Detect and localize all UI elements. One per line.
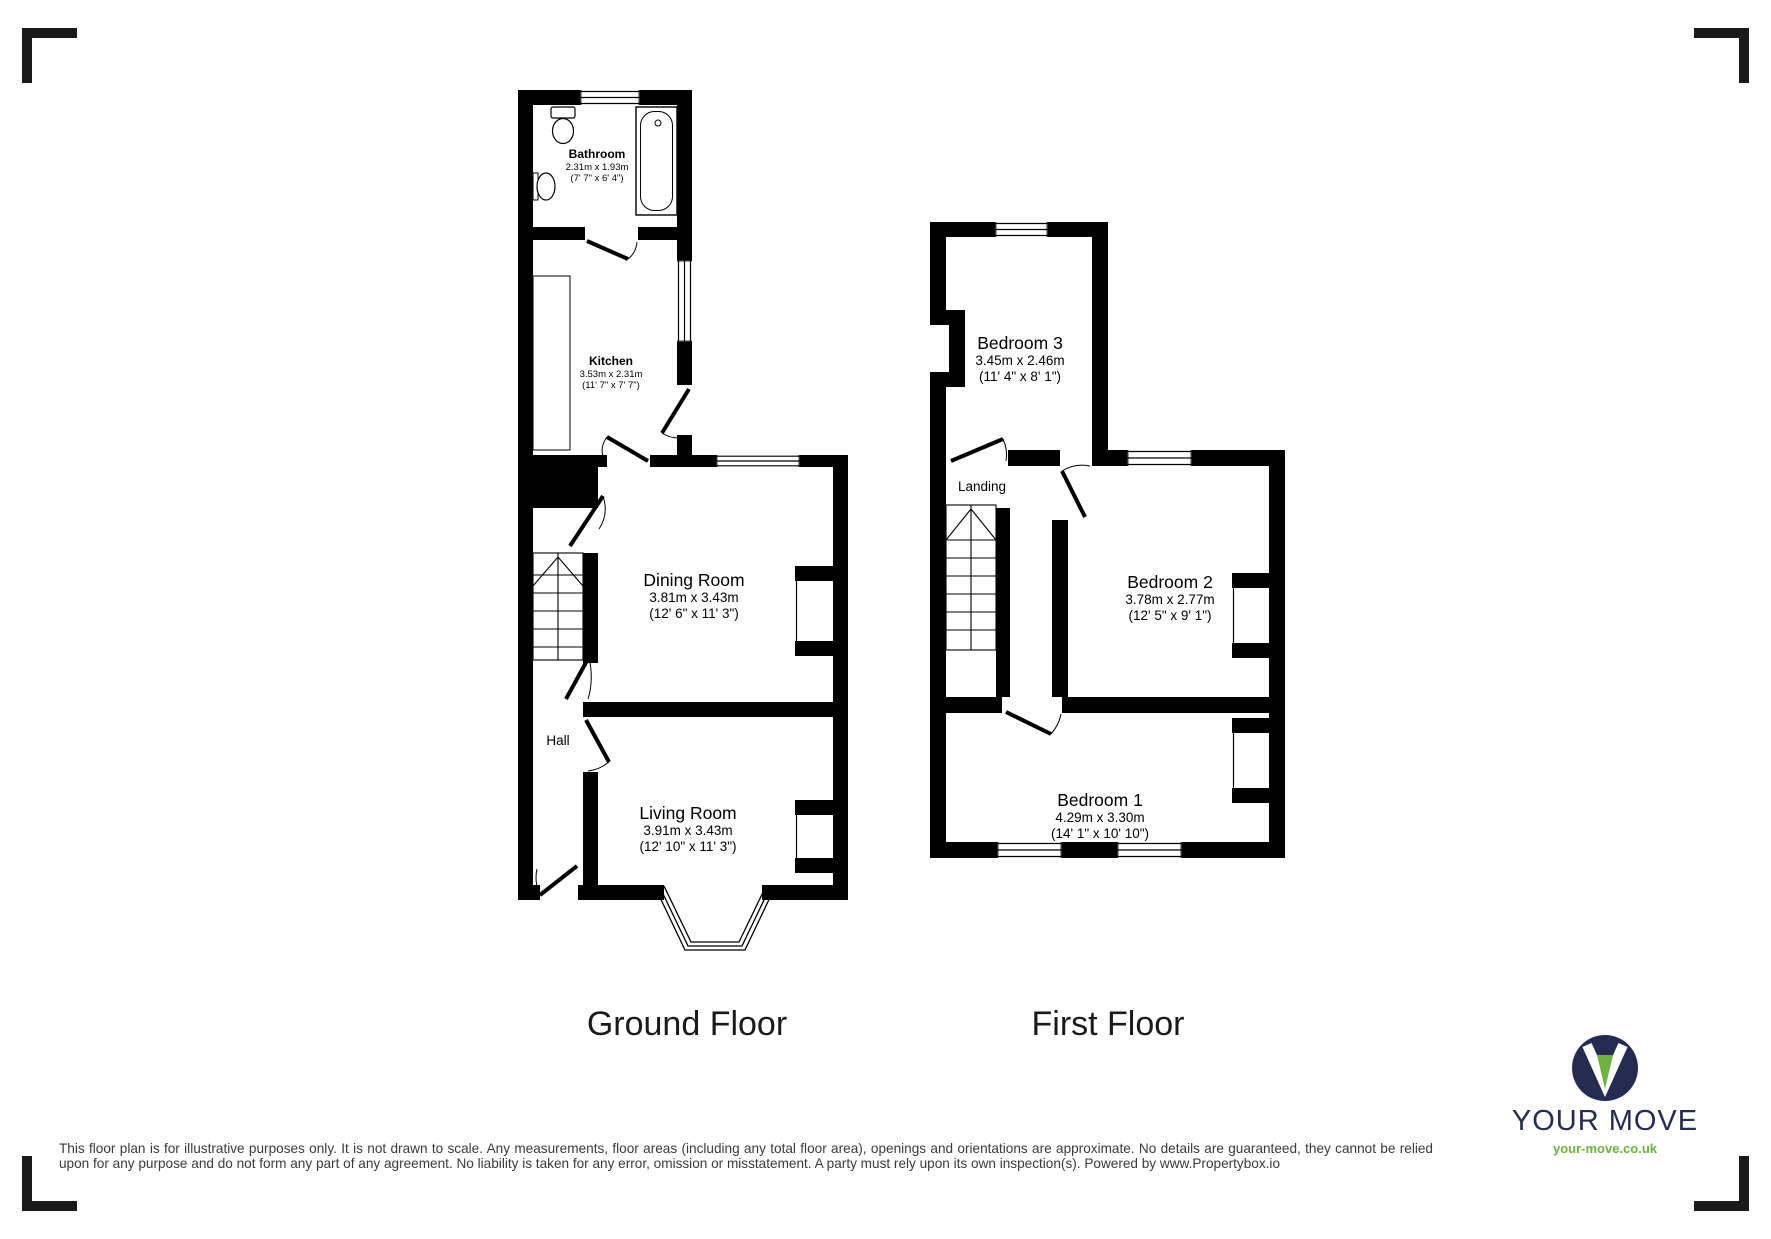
bedroom3-window	[995, 222, 1048, 237]
corner-marks	[22, 28, 1749, 1211]
room-size-metric: 2.31m x 1.93m	[566, 162, 629, 173]
room-name: Living Room	[639, 803, 736, 823]
first-floor-stairs	[946, 505, 996, 650]
bedroom2-window	[1127, 450, 1192, 466]
room-label-bedroom-3: Bedroom 3 3.45m x 2.46m (11' 4" x 8' 1")	[975, 333, 1064, 385]
room-name: Landing	[958, 479, 1006, 495]
ground-floor-stairs	[533, 553, 583, 660]
room-size-imperial: (12' 6" x 11' 3")	[643, 606, 744, 622]
room-label-bedroom-2: Bedroom 2 3.78m x 2.77m (12' 5" x 9' 1")	[1125, 572, 1214, 624]
room-size-imperial: (12' 5" x 9' 1")	[1125, 608, 1214, 624]
room-size-imperial: (11' 7" x 7' 7")	[580, 380, 643, 391]
first-floor-plan	[930, 222, 1285, 858]
corner-mark-bottom-right	[1694, 1156, 1749, 1211]
room-label-living-room: Living Room 3.91m x 3.43m (12' 10" x 11'…	[639, 803, 736, 855]
sink-icon	[533, 173, 555, 200]
room-size-imperial: (11' 4" x 8' 1")	[975, 369, 1064, 385]
toilet-icon	[551, 107, 575, 144]
room-label-kitchen: Kitchen 3.53m x 2.31m (11' 7" x 7' 7")	[580, 355, 643, 391]
bedroom1-window-right	[1117, 842, 1182, 858]
kitchen-counter	[533, 276, 570, 450]
room-name: Dining Room	[643, 570, 744, 590]
disclaimer-text: This floor plan is for illustrative purp…	[59, 1141, 1433, 1172]
room-size-imperial: (7' 7" x 6' 4")	[566, 173, 629, 184]
logo-brand-text: YOUR MOVE	[1509, 1106, 1701, 1138]
bay-window	[650, 885, 776, 950]
room-size-metric: 3.78m x 2.77m	[1125, 592, 1214, 608]
room-size-metric: 3.53m x 2.31m	[580, 369, 643, 380]
room-name: Hall	[546, 733, 569, 749]
room-name: Bathroom	[566, 148, 629, 162]
room-size-metric: 4.29m x 3.30m	[1051, 810, 1149, 826]
bathroom-window	[580, 90, 640, 105]
your-move-logo-icon	[1570, 1033, 1640, 1103]
room-size-metric: 3.91m x 3.43m	[639, 823, 736, 839]
corner-mark-top-right	[1694, 28, 1749, 83]
bedroom1-window-left	[997, 842, 1062, 858]
ground-floor-doors	[536, 241, 689, 895]
bathtub-icon	[636, 107, 677, 215]
dining-room-window	[716, 455, 800, 467]
room-size-metric: 3.45m x 2.46m	[975, 353, 1064, 369]
floorplan-page: { "page": { "background": "#ffffff", "li…	[0, 0, 1771, 1239]
room-name: Bedroom 3	[975, 333, 1064, 353]
logo-website-text: your-move.co.uk	[1509, 1142, 1701, 1156]
room-size-metric: 3.81m x 3.43m	[643, 590, 744, 606]
room-name: Kitchen	[580, 355, 643, 369]
room-size-imperial: (12' 10" x 11' 3")	[639, 839, 736, 855]
your-move-logo: YOUR MOVE your-move.co.uk	[1509, 1033, 1701, 1156]
room-label-hall: Hall	[546, 733, 569, 749]
kitchen-window	[677, 260, 692, 342]
floor-title-first: First Floor	[1032, 1005, 1185, 1044]
room-label-dining-room: Dining Room 3.81m x 3.43m (12' 6" x 11' …	[643, 570, 744, 622]
room-name: Bedroom 2	[1125, 572, 1214, 592]
floor-plan-drawing	[0, 0, 1771, 1239]
corner-mark-top-left	[22, 28, 77, 83]
room-label-bathroom: Bathroom 2.31m x 1.93m (7' 7" x 6' 4")	[566, 148, 629, 184]
room-label-landing: Landing	[958, 479, 1006, 495]
floor-title-ground: Ground Floor	[587, 1005, 787, 1044]
ground-floor-walls	[518, 90, 848, 900]
room-name: Bedroom 1	[1051, 790, 1149, 810]
room-size-imperial: (14' 1" x 10' 10")	[1051, 826, 1149, 842]
room-label-bedroom-1: Bedroom 1 4.29m x 3.30m (14' 1" x 10' 10…	[1051, 790, 1149, 842]
